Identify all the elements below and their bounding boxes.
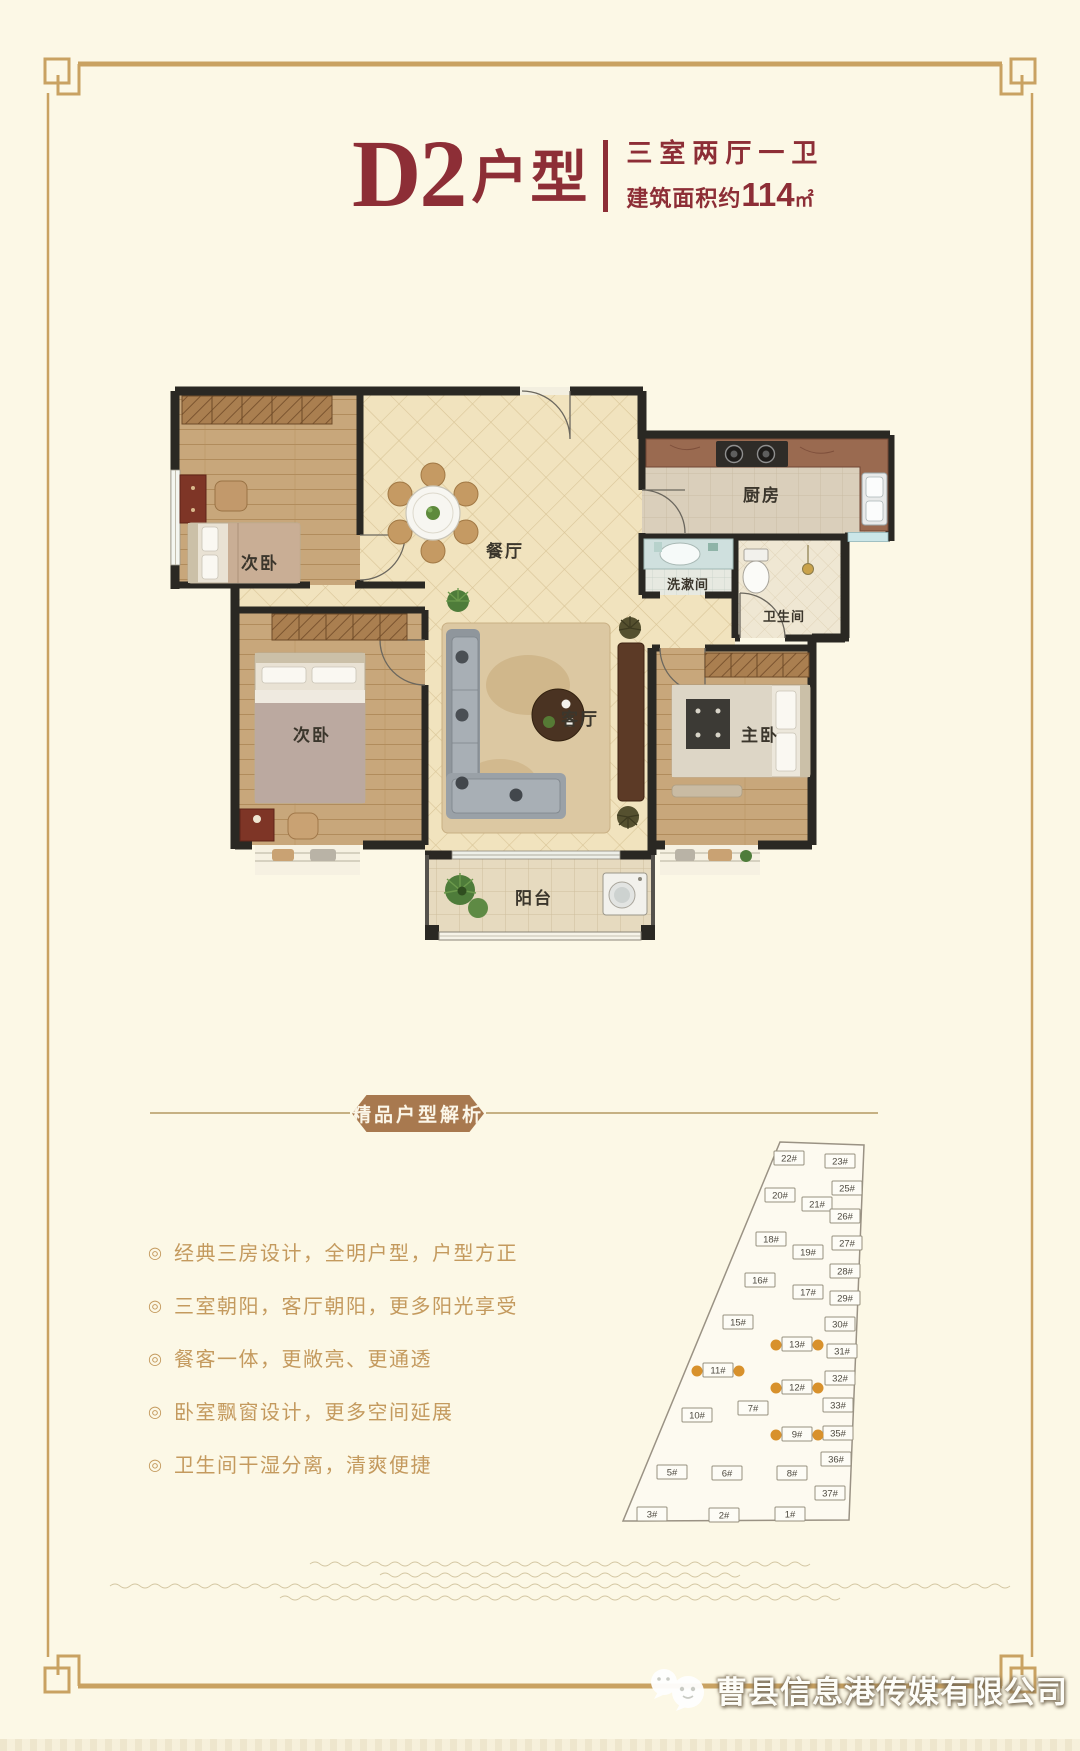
svg-text:7#: 7#	[748, 1404, 759, 1415]
siteplan-building: 21#	[802, 1197, 832, 1211]
decorative-script-text	[90, 1556, 1030, 1612]
siteplan-building: 16#	[745, 1273, 775, 1287]
siteplan-building: 30#	[825, 1317, 855, 1331]
svg-text:32#: 32#	[832, 1374, 849, 1385]
siteplan-building: 8#	[777, 1466, 807, 1480]
svg-text:8#: 8#	[787, 1469, 798, 1480]
siteplan-building: 1#	[775, 1507, 805, 1521]
svg-text:35#: 35#	[830, 1429, 847, 1440]
site-plan-map: 22#23#25#20#21#26#18#27#19#28#16#17#29#1…	[545, 1128, 965, 1528]
wash-basin	[644, 539, 733, 569]
section-banner-text: 精品户型解析	[352, 1100, 484, 1127]
svg-text:37#: 37#	[822, 1489, 839, 1500]
siteplan-building: 7#	[738, 1401, 768, 1415]
room-label-wash: 洗漱间	[667, 577, 709, 592]
svg-text:36#: 36#	[828, 1455, 845, 1466]
svg-text:13#: 13#	[789, 1340, 806, 1351]
siteplan-building: 5#	[657, 1465, 687, 1479]
banner-line-left	[150, 1112, 350, 1114]
svg-text:15#: 15#	[730, 1318, 747, 1329]
siteplan-building: 10#	[682, 1408, 712, 1422]
svg-text:12#: 12#	[789, 1383, 806, 1394]
svg-text:25#: 25#	[839, 1184, 856, 1195]
svg-text:29#: 29#	[837, 1294, 854, 1305]
bullet-icon: ◎	[148, 1401, 162, 1425]
svg-text:18#: 18#	[763, 1235, 780, 1246]
siteplan-building: 35#	[823, 1426, 853, 1440]
svg-text:10#: 10#	[689, 1411, 706, 1422]
siteplan-building: 31#	[827, 1344, 857, 1358]
siteplan-building: 2#	[709, 1508, 739, 1522]
svg-text:26#: 26#	[837, 1212, 854, 1223]
siteplan-building: 22#	[774, 1151, 804, 1165]
svg-text:16#: 16#	[752, 1276, 769, 1287]
siteplan-building: 6#	[712, 1466, 742, 1480]
svg-text:2#: 2#	[719, 1511, 730, 1522]
svg-text:3#: 3#	[647, 1510, 658, 1521]
siteplan-building: 33#	[823, 1398, 853, 1412]
room-label-bedroom2: 次卧	[293, 725, 331, 745]
siteplan-building: 36#	[821, 1452, 851, 1466]
svg-text:23#: 23#	[832, 1157, 849, 1168]
unit-specs: 三室两厅一卫 建筑面积约114㎡	[626, 133, 824, 214]
unit-code-suffix: 户型	[471, 132, 589, 214]
svg-text:6#: 6#	[722, 1469, 733, 1480]
siteplan-building: 28#	[830, 1264, 860, 1278]
svg-text:22#: 22#	[781, 1154, 798, 1165]
svg-text:21#: 21#	[809, 1200, 826, 1211]
svg-text:20#: 20#	[772, 1191, 789, 1202]
watermark-company: 曹县信息港传媒有限公司	[716, 1667, 1068, 1712]
siteplan-building: 17#	[793, 1285, 823, 1299]
siteplan-building: 19#	[793, 1245, 823, 1259]
siteplan-building: 3#	[637, 1507, 667, 1521]
svg-text:31#: 31#	[834, 1347, 851, 1358]
list-item: ◎ 卫生间干湿分离，清爽便捷	[148, 1454, 518, 1478]
room-spec: 三室两厅一卫	[626, 133, 824, 170]
list-item: ◎ 经典三房设计，全明户型，户型方正	[148, 1242, 518, 1266]
floor-plan: 次卧 餐厅 厨房 洗漱间 卫生间 次卧 客厅 主卧 阳台	[160, 385, 900, 950]
svg-text:1#: 1#	[785, 1510, 796, 1521]
svg-text:19#: 19#	[800, 1248, 817, 1259]
list-item: ◎ 餐客一体，更敞亮、更通透	[148, 1348, 518, 1372]
room-label-dining: 餐厅	[486, 541, 524, 561]
siteplan-building: 37#	[815, 1486, 845, 1500]
siteplan-building: 27#	[832, 1236, 862, 1250]
bullet-icon: ◎	[148, 1242, 162, 1266]
area-value: 114	[741, 176, 794, 213]
room-label-master: 主卧	[741, 725, 779, 745]
siteplan-building: 23#	[825, 1154, 855, 1168]
siteplan-building: 26#	[830, 1209, 860, 1223]
svg-text:33#: 33#	[830, 1401, 847, 1412]
room-label-bath: 卫生间	[763, 609, 805, 624]
room-label-kitchen: 厨房	[743, 485, 781, 505]
svg-text:9#: 9#	[792, 1430, 803, 1441]
chat-bubble-icon	[648, 1666, 710, 1712]
list-item: ◎ 卧室飘窗设计，更多空间延展	[148, 1401, 518, 1425]
unit-code: D2	[352, 132, 465, 216]
bullet-icon: ◎	[148, 1348, 162, 1372]
svg-text:11#: 11#	[710, 1366, 726, 1377]
list-item: ◎ 三室朝阳，客厅朝阳，更多阳光享受	[148, 1295, 518, 1319]
siteplan-building: 15#	[723, 1315, 753, 1329]
svg-text:17#: 17#	[800, 1288, 817, 1299]
svg-text:5#: 5#	[667, 1468, 678, 1479]
bullet-icon: ◎	[148, 1454, 162, 1478]
svg-text:27#: 27#	[839, 1239, 856, 1250]
area-spec: 建筑面积约114㎡	[626, 176, 824, 214]
siteplan-building: 25#	[832, 1181, 862, 1195]
siteplan-building: 20#	[765, 1188, 795, 1202]
room-label-bedroom1: 次卧	[241, 553, 279, 573]
room-label-balcony: 阳台	[515, 888, 553, 908]
siteplan-building: 18#	[756, 1232, 786, 1246]
watermark: 曹县信息港传媒有限公司	[648, 1666, 1068, 1712]
room-label-living: 客厅	[560, 709, 599, 729]
siteplan-building: 32#	[825, 1371, 855, 1385]
banner-line-right	[486, 1112, 878, 1114]
svg-text:28#: 28#	[837, 1267, 854, 1278]
feature-list: ◎ 经典三房设计，全明户型，户型方正 ◎ 三室朝阳，客厅朝阳，更多阳光享受 ◎ …	[148, 1242, 518, 1507]
svg-text:30#: 30#	[832, 1320, 849, 1331]
title-divider	[603, 140, 608, 212]
unit-title-block: D2 户型 三室两厅一卫 建筑面积约114㎡	[352, 132, 824, 216]
section-banner: 精品户型解析	[352, 1095, 484, 1132]
bullet-icon: ◎	[148, 1295, 162, 1319]
area-unit: ㎡	[795, 190, 815, 211]
siteplan-building: 29#	[830, 1291, 860, 1305]
